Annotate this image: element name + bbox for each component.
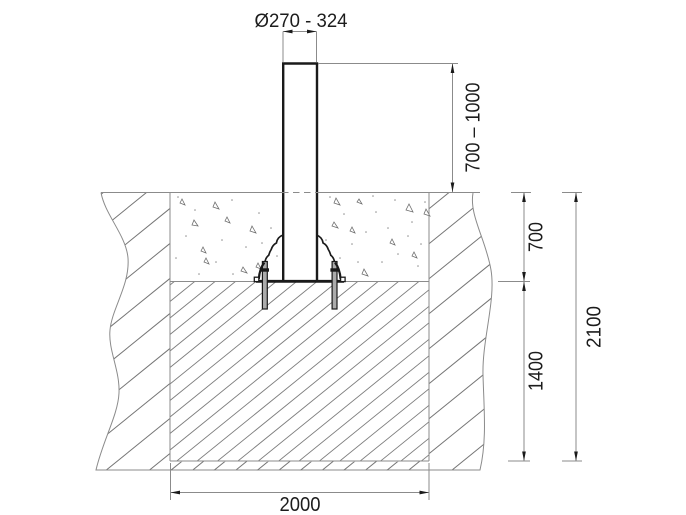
svg-text:2100: 2100 [584,306,606,348]
svg-text:2000: 2000 [280,494,321,515]
svg-text:1400: 1400 [526,351,548,391]
svg-text:Ø270 - 324: Ø270 - 324 [255,11,348,32]
svg-text:700 – 1000: 700 – 1000 [463,83,485,173]
svg-text:700: 700 [526,222,548,252]
